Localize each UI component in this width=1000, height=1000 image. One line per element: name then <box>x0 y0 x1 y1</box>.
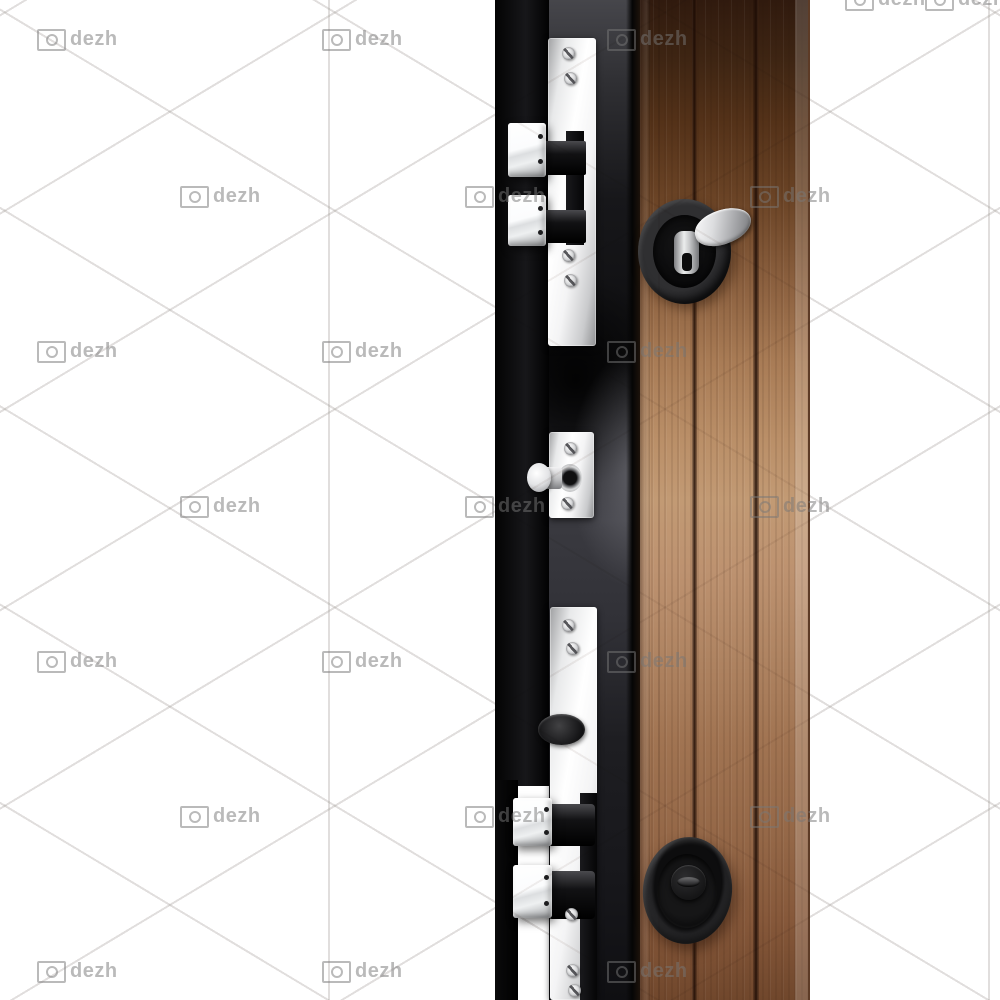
edge-wood-seam <box>626 0 640 1000</box>
bolt-pin-icon <box>538 230 543 235</box>
bolt-arm <box>546 804 595 846</box>
screw-icon <box>565 908 578 921</box>
bolt-pin-icon <box>544 830 549 835</box>
keyhole-slot <box>677 877 700 887</box>
bolt-arm <box>542 210 586 243</box>
screw-icon <box>561 497 574 510</box>
slide-bolt-block <box>513 798 552 846</box>
screw-icon <box>566 964 579 977</box>
wood-right-edge-highlight <box>795 0 808 1000</box>
slide-bolt-block <box>508 123 546 177</box>
bolt-pin-icon <box>538 206 543 211</box>
cylinder-keyhole <box>538 714 585 745</box>
screw-icon <box>564 442 577 455</box>
bolt-pin-icon <box>538 134 543 139</box>
wood-groove-2 <box>753 0 759 1000</box>
slide-bolt-block <box>513 865 552 918</box>
screw-icon <box>562 47 575 60</box>
screw-icon <box>568 984 581 997</box>
bolt-arm <box>542 141 586 175</box>
screw-icon <box>564 274 577 287</box>
door-frame-edge-upper <box>495 0 551 786</box>
screw-icon <box>562 249 575 262</box>
bolt-pin-icon <box>538 159 543 164</box>
bolt-pin-icon <box>544 807 549 812</box>
bolt-pin-icon <box>544 901 549 906</box>
slide-bolt-block <box>508 195 546 246</box>
bolt-pin-icon <box>544 875 549 880</box>
keyway-slot <box>682 253 692 271</box>
product-photo: dezhdezhdezhdezhdezhdezhdezhdezhdezhdezh… <box>0 0 1000 1000</box>
screw-icon <box>566 642 579 655</box>
screw-icon <box>562 619 575 632</box>
screw-icon <box>564 72 577 85</box>
pin-bolt-cap <box>527 463 551 492</box>
